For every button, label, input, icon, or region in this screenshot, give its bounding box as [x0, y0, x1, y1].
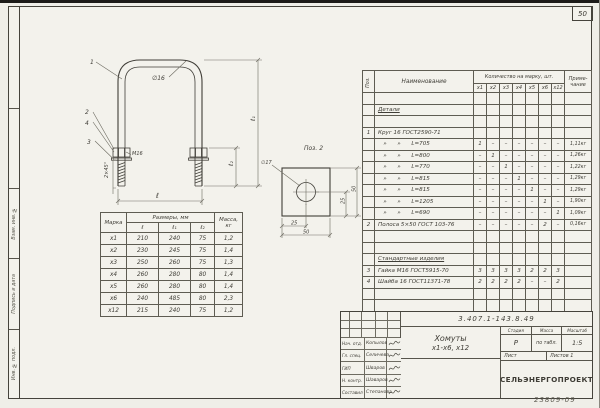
callout-2: 2 [85, 109, 89, 116]
archive-number: 23809-09 [534, 396, 576, 404]
filing-strip-segment: Подпись и дата [9, 259, 19, 329]
size-header-l2: ℓ₂ [191, 223, 215, 233]
mass-label: Масса [532, 327, 563, 334]
spec-table-row [363, 93, 592, 105]
sheet-number: 50 [572, 6, 593, 21]
spec-table-body: Детали1Круг 16 ГОСТ2590-71»» L=7051–––––… [363, 93, 592, 312]
spec-table-row: »» L=7051––––––1,11кг [363, 139, 592, 151]
spec-table-row: »» L=815––––1––1,29кг [363, 185, 592, 197]
signer-row: СоставилСтепанова [341, 387, 401, 398]
thread-left [118, 163, 125, 184]
thread-label: М16 [132, 151, 143, 157]
spec-table-row: 2Полоса 5×50 ГОСТ 103-76–––––2–0,16кг [363, 219, 592, 231]
signer-role: Н. контр. [341, 375, 365, 386]
spec-table-row: Детали [363, 104, 592, 116]
spec-table-row: 4Шайба 16 ГОСТ11371-782222––2 [363, 277, 592, 289]
spec-header-pos: Поз. [363, 71, 375, 93]
hole-diameter-label: ∅17 [261, 160, 273, 166]
ubolt-inner-contour [125, 67, 195, 186]
dim-l2-label: ℓ₂ [228, 161, 235, 167]
size-table-row: х5260280801,4 [101, 281, 243, 293]
size-table-body: х1210240751,2х2230245751,4х3250260751,3х… [101, 233, 243, 317]
dim-l-label: ℓ [155, 192, 159, 200]
size-table-row: х6240485802,3 [101, 293, 243, 305]
callout-4: 4 [85, 120, 89, 127]
scale-label: Масштаб [562, 327, 592, 334]
spec-table-row: 1Круг 16 ГОСТ2590-71 [363, 127, 592, 139]
doc-number: 3.407.1-143.8.49 [401, 312, 592, 327]
chamfer-label: 2×45° [104, 161, 110, 178]
signer-name: Селичева [365, 350, 387, 361]
signature-scribble [387, 351, 401, 360]
drawing-title: Хомуты х1-х6, х12 [401, 327, 501, 359]
title-block: 3.407.1-143.8.49 Хомуты х1-х6, х12 Нач. … [340, 311, 593, 399]
drawing-title-line1: Хомуты [434, 334, 466, 343]
stage-value: Р [501, 335, 532, 351]
signer-name: Копылов [365, 338, 387, 349]
spec-table-row [363, 231, 592, 243]
dim-l1-label: ℓ₁ [250, 116, 257, 122]
plate-dim-25v: 25 [341, 198, 347, 204]
size-header-l: ℓ [127, 223, 159, 233]
size-table: Марка Размеры, мм Масса, кг ℓ ℓ₁ ℓ₂ х121… [100, 212, 243, 317]
spec-mark-header: х12 [552, 84, 565, 93]
signer-row: Гл. спец.Селичева [341, 350, 401, 362]
signature-scribble [387, 364, 401, 373]
rod-diameter-label: ∅16 [152, 75, 165, 82]
filing-strip-segment: Взам. инв. № [9, 189, 19, 259]
sheet-row: Лист Листов 1 [501, 352, 592, 361]
spec-table-row: »» L=770––1––––1,22кг [363, 162, 592, 174]
size-header-mass: Масса, кг [215, 213, 243, 233]
callout-1: 1 [90, 59, 94, 66]
spec-header-note: Приме- чание [565, 71, 592, 93]
spec-table-row [363, 242, 592, 254]
spec-table-row: »» L=1205–––––1–1,90кг [363, 196, 592, 208]
drawing-sheet: 50 Взам. инв. №Подпись и датаИнв. № подл… [0, 0, 600, 408]
callout-3: 3 [87, 139, 91, 146]
spec-mark-header: х6 [539, 84, 552, 93]
plate-view: Поз. 2 ∅17 25 50 25 50 [260, 138, 375, 253]
signer-name: Шаваров [365, 375, 387, 386]
size-table-row: х12215240751,2 [101, 305, 243, 317]
ubolt-drawing: 1 2 4 3 ∅16 М16 2×45° ℓ ℓ₁ ℓ₂ [52, 48, 282, 218]
signer-role: Гл. спец. [341, 350, 365, 361]
spec-header-qty: Количество на марку, шт. [474, 71, 565, 84]
spec-mark-header: х3 [500, 84, 513, 93]
organization-name: СЕЛЬЭНЕРГОПРОЕКТ [501, 361, 592, 398]
filing-strip-segment [9, 7, 19, 109]
signature-scribble [387, 339, 401, 348]
size-table-row: х4260280801,4 [101, 269, 243, 281]
stage-values: Р по табл. 1:5 [501, 335, 592, 352]
signer-name: Шваров [365, 362, 387, 373]
signer-role: Нач. отд. [341, 338, 365, 349]
spec-table-row [363, 116, 592, 128]
signature-scribble [387, 388, 401, 397]
spec-table-row [363, 288, 592, 300]
revision-grid [341, 312, 401, 338]
stage-headers: Стадия Масса Масштаб [501, 327, 592, 335]
scan-edge-top [0, 0, 600, 3]
signer-row: Н. контр.Шаваров [341, 375, 401, 387]
signer-role: ГИП [341, 362, 365, 373]
scale-value: 1:5 [562, 335, 592, 351]
plate-dim-50h: 50 [303, 230, 309, 236]
drawing-title-line2: х1-х6, х12 [432, 344, 469, 352]
signer-rows: Нач. отд.КопыловГл. спец.СеличеваГИПШвар… [341, 338, 401, 398]
filing-strip-segment: Инв. № подл. [9, 330, 19, 398]
spec-table-row: »» L=815–––1–––1,29кг [363, 173, 592, 185]
title-block-empty-cell [401, 359, 501, 398]
spec-mark-header: х4 [513, 84, 526, 93]
stage-label: Стадия [501, 327, 532, 334]
spec-table-row [363, 300, 592, 312]
spec-table-row: »» L=690––––––11,09кг [363, 208, 592, 220]
sheet-label: Лист [501, 352, 547, 360]
signer-role: Составил [341, 387, 365, 398]
sheets-label: Листов 1 [547, 352, 592, 360]
spec-table-row: Стандартные изделия [363, 254, 592, 266]
signature-scribble [387, 376, 401, 385]
plate-dim-50v: 50 [352, 186, 358, 192]
signer-row: ГИПШваров [341, 362, 401, 374]
washer-right [189, 158, 209, 160]
signer-name: Степанова [365, 387, 387, 398]
size-table-row: х1210240751,2 [101, 233, 243, 245]
plate-dim-25h: 25 [291, 221, 297, 227]
spec-header-name: Наименование [375, 71, 474, 93]
thread-right [195, 163, 202, 184]
mass-value: по табл. [532, 335, 563, 351]
spec-table-row: 3Гайка М16 ГОСТ5915-703333223 [363, 265, 592, 277]
size-table-row: х3250260751,3 [101, 257, 243, 269]
nut-right [190, 148, 207, 157]
filing-strip-segment [9, 109, 19, 189]
spec-mark-header: х5 [526, 84, 539, 93]
size-header-dims: Размеры, мм [127, 213, 215, 223]
spec-mark-header: х1 [474, 84, 487, 93]
spec-mark-header: х2 [487, 84, 500, 93]
spec-table-row: »» L=800–1–––––1,26кг [363, 150, 592, 162]
filing-strip: Взам. инв. №Подпись и датаИнв. № подл. [8, 6, 20, 399]
plate-view-title: Поз. 2 [304, 145, 323, 152]
size-table-row: х2230245751,4 [101, 245, 243, 257]
size-header-mark: Марка [101, 213, 127, 233]
size-header-l1: ℓ₁ [159, 223, 191, 233]
signer-row: Нач. отд.Копылов [341, 338, 401, 350]
spec-table: Поз. Наименование Количество на марку, ш… [362, 70, 592, 312]
